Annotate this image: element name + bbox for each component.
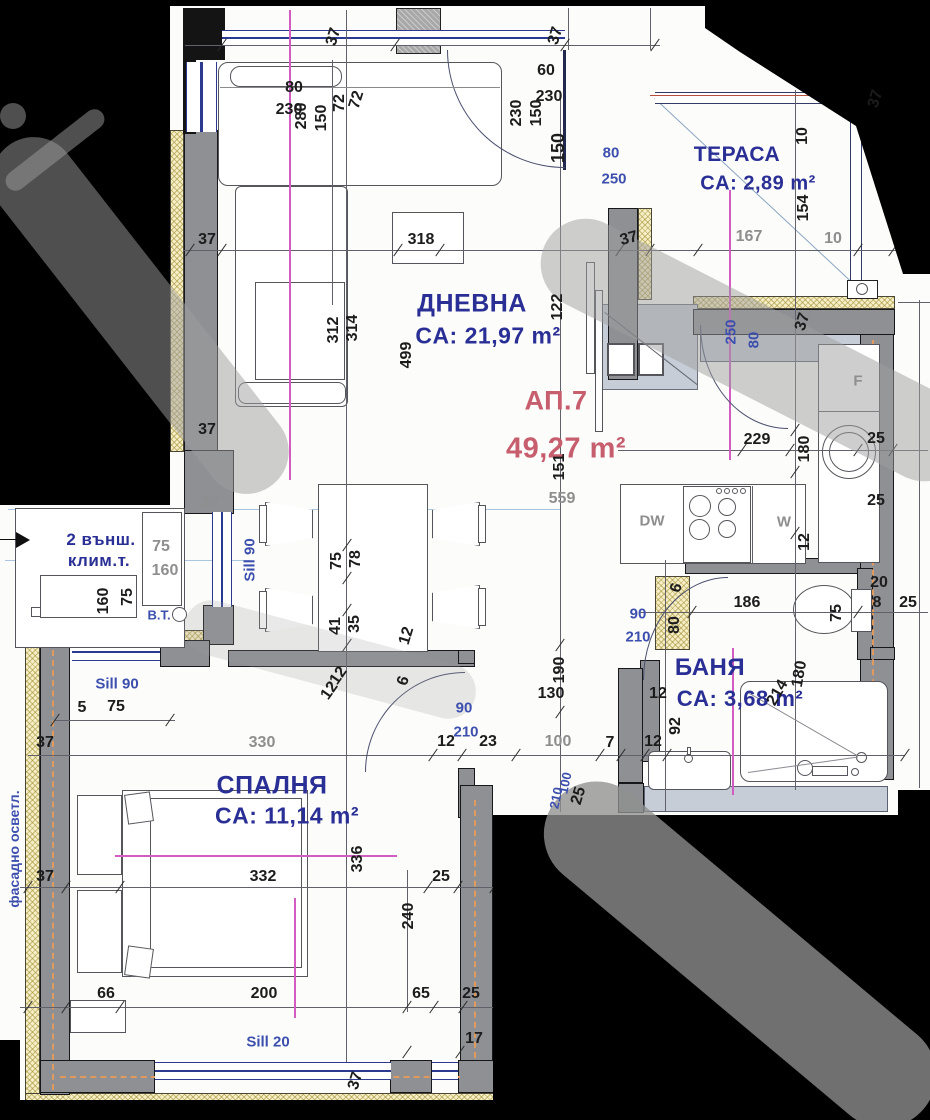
dim-line: [55, 720, 175, 721]
dim-label: Sill 90: [95, 677, 138, 692]
porch-line: [650, 8, 651, 50]
dim-label: F: [853, 374, 862, 389]
dim-label: 90: [630, 607, 647, 622]
dim-label: 37: [198, 232, 216, 248]
service-line: [474, 800, 476, 1058]
bed-pillow: [124, 945, 154, 978]
toilet: [793, 585, 855, 634]
dim-label: 23: [479, 734, 497, 750]
dim-label: 332: [250, 869, 277, 885]
dim-label: 180: [797, 436, 813, 463]
stove-burner: [689, 495, 711, 517]
plan-area-right-strip: [898, 240, 930, 790]
window-bedroom-bottom-2: [432, 1062, 458, 1080]
dim-label: 154: [796, 195, 812, 222]
dim-label: 60: [537, 63, 555, 79]
dim-label: 41: [328, 617, 344, 635]
insulation-bedroom-left: [25, 632, 40, 1095]
wall-bedroom-right: [460, 785, 493, 1063]
dim-label: 75: [329, 552, 345, 570]
stove-knob: [716, 488, 722, 494]
dim-label: 318: [408, 232, 435, 248]
window-left-lower: [212, 512, 232, 607]
entry-arrow-icon: [16, 532, 30, 548]
dim-label: DW: [640, 514, 665, 529]
dim-label: 90: [456, 701, 473, 716]
dim-label: W: [777, 515, 791, 530]
window-living-top: [222, 30, 565, 46]
dim-label: 150: [529, 100, 545, 127]
dim-label: 75: [829, 604, 845, 622]
dim-line: [407, 870, 408, 1012]
dim-label: 186: [734, 595, 761, 611]
room-label-terrace-name: ТЕРАСА: [694, 143, 780, 167]
dim-label: 80: [747, 332, 762, 349]
dim-label: 100: [545, 734, 572, 750]
dim-label: 314: [345, 315, 361, 342]
chair-backrest: [478, 505, 486, 543]
dim-label: B.T.: [147, 609, 170, 622]
bath-sink-faucet-stem: [687, 747, 691, 755]
dim-label: 25: [899, 595, 917, 611]
dim-line: [898, 302, 930, 303]
stove-knob: [724, 488, 730, 494]
dim-label: 210: [625, 630, 650, 645]
room-label-bedroom-name: СПАЛНЯ: [217, 772, 328, 801]
dim-line: [20, 1007, 497, 1008]
dim-label: 10: [795, 127, 811, 145]
dim-label: 66: [97, 986, 115, 1002]
dim-label: 336: [350, 846, 366, 873]
dim-label: 25: [462, 986, 480, 1002]
dim-label: 150: [549, 133, 567, 163]
mask-bottom-left-corner: [0, 1040, 20, 1102]
apartment-number: АП.7: [524, 386, 587, 417]
stove-burner: [689, 519, 710, 540]
dim-label: 250: [724, 319, 739, 344]
sofa-seam: [220, 87, 500, 88]
ac-unit-handle: [31, 607, 41, 617]
dim-label: 37: [36, 735, 54, 751]
wall-hall-bath-stub: [618, 668, 643, 783]
dim-label: 167: [736, 229, 763, 245]
kitchen-sink-bowl: [607, 343, 635, 376]
nightstand: [77, 795, 122, 875]
counter-divider: [752, 486, 753, 563]
dim-label: 78: [348, 550, 364, 568]
dim-label: 80: [603, 146, 620, 161]
wall-bedroom-bottom-right: [458, 1060, 497, 1093]
dim-label: Sill 90: [243, 538, 258, 581]
room-label-living-area: CA: 21,97 m²: [415, 323, 560, 350]
stove-burner: [718, 520, 736, 538]
dim-label: 122: [550, 294, 566, 321]
chair-backrest: [259, 505, 267, 543]
dim-label: 7: [606, 735, 615, 751]
dim-label: 10: [824, 231, 842, 247]
dim-label: 20: [870, 575, 888, 591]
stove-knob: [732, 488, 738, 494]
nightstand: [77, 890, 122, 973]
ac-platform-inner: [142, 512, 182, 606]
dim-label: 230: [509, 100, 525, 127]
watermark-pommel: [0, 103, 26, 129]
toilet-tank: [851, 589, 872, 632]
stove-knob: [740, 488, 746, 494]
dim-label: 75: [120, 588, 136, 606]
dim-line: [185, 45, 660, 46]
dim-label: 151: [552, 454, 568, 481]
dim-label: 5: [78, 700, 87, 716]
dim-label: 12: [797, 533, 813, 551]
dim-label: 200: [251, 986, 278, 1002]
dim-label: 80: [667, 616, 683, 634]
dim-label: 240: [401, 903, 417, 930]
dim-line: [346, 10, 347, 1062]
dim-label: 25: [867, 493, 885, 509]
dim-label: 312: [326, 317, 342, 344]
dim-label: 75: [107, 699, 125, 715]
vent-box-circle: [856, 283, 868, 295]
room-label-bedroom-area: CA: 11,14 m²: [215, 803, 359, 830]
ac-note-line1: 2 външ.: [66, 530, 135, 550]
dim-label: 150: [314, 105, 330, 132]
dim-label: 499: [399, 342, 415, 369]
room-label-living-name: ДНЕВНА: [417, 290, 527, 319]
stove-burner: [718, 498, 736, 516]
dim-label: 190: [552, 657, 568, 684]
wall-bedroom-left: [40, 632, 70, 1095]
dim-label: 35: [347, 615, 363, 633]
dim-label: 160: [152, 563, 179, 579]
shower-knob: [851, 768, 859, 776]
dim-label: 229: [744, 432, 771, 448]
dim-label: 12: [649, 686, 667, 702]
dim-label: 330: [249, 735, 276, 751]
dim-label: 12: [644, 734, 662, 750]
dim-label: 12: [437, 734, 455, 750]
room-label-terrace-area: CA: 2,89 m²: [700, 173, 816, 196]
dim-label: 280: [294, 103, 310, 130]
dim-label: 17: [465, 1031, 483, 1047]
dim-label: 37: [198, 422, 216, 438]
floor-plan: ДНЕВНА CA: 21,97 m² ТЕРАСА CA: 2,89 m² С…: [0, 0, 930, 1120]
side-table: [70, 1000, 126, 1033]
dim-label: 130: [538, 686, 565, 702]
porch-line: [568, 8, 569, 50]
mask-bottom-strip: [0, 1100, 930, 1120]
dim-line: [919, 300, 920, 788]
dim-label: 92: [668, 717, 684, 735]
bed-pillow: [124, 791, 154, 824]
dim-label: 75: [152, 539, 170, 555]
wall-bedroom-door-jamb: [458, 650, 475, 664]
dim-label: 80: [285, 80, 303, 96]
window-left-upper: [186, 62, 217, 132]
dim-label: 25: [867, 431, 885, 447]
dim-label: 559: [549, 491, 576, 507]
shower-mixer: [812, 766, 848, 776]
dim-label: Sill 20: [246, 1035, 289, 1050]
room-label-bath-name: БАНЯ: [675, 654, 745, 682]
dim-label: фасадно осветл.: [7, 790, 21, 907]
dim-label: 25: [432, 869, 450, 885]
arrow-line: [0, 539, 16, 540]
dim-label: 8: [873, 595, 882, 611]
dim-label: 37: [201, 495, 219, 511]
chair-backrest: [478, 588, 486, 626]
ac-note-line2: клим.т.: [68, 551, 130, 571]
dim-label: 37: [36, 869, 54, 885]
dim-line: [28, 755, 905, 756]
centerline: [294, 898, 296, 1018]
dim-label: 210: [453, 725, 478, 740]
dim-label: 250: [601, 172, 626, 187]
dim-label: 160: [96, 588, 112, 615]
dim-label: 65: [412, 986, 430, 1002]
